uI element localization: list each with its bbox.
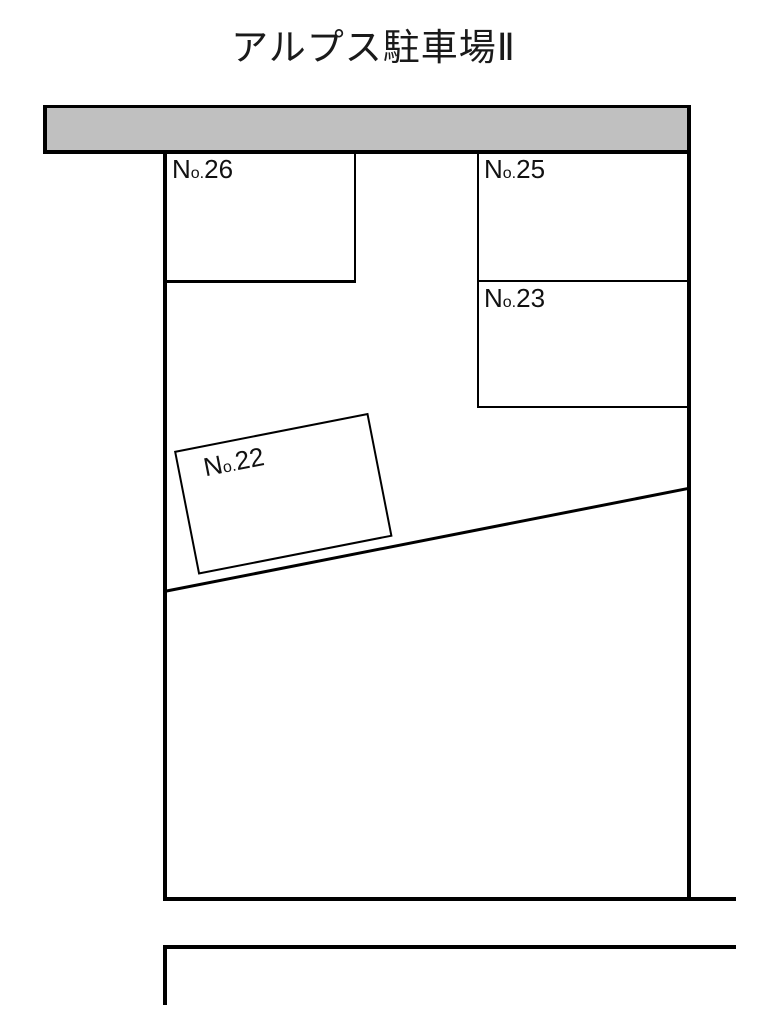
parking-lot-diagram: アルプス駐車場Ⅱ No.26 No.25 No.23 No.22 — [0, 0, 761, 1009]
label-prefix-small: o. — [191, 165, 204, 182]
label-prefix-small: o. — [503, 294, 516, 311]
space-25-label: No.25 — [479, 153, 545, 182]
label-prefix: N — [484, 154, 503, 184]
label-prefix: N — [172, 154, 191, 184]
space-22-label: No.22 — [176, 436, 266, 485]
boundary-right-line — [687, 105, 691, 901]
page-title: アルプス駐車場Ⅱ — [0, 17, 747, 71]
label-prefix: N — [484, 283, 503, 313]
road-strip — [43, 105, 691, 154]
label-number: 23 — [516, 283, 545, 313]
label-prefix: N — [201, 449, 225, 482]
label-number: 25 — [516, 154, 545, 184]
lower-structure-left-line — [163, 945, 167, 1005]
parking-space-26: No.26 — [167, 153, 356, 283]
parking-space-25: No.25 — [477, 153, 687, 282]
label-number: 26 — [204, 154, 233, 184]
boundary-bottom-line — [163, 897, 736, 901]
parking-space-23: No.23 — [477, 282, 687, 408]
label-number: 22 — [232, 441, 266, 476]
space-26-label: No.26 — [167, 153, 233, 182]
lower-structure-top-line — [163, 945, 736, 949]
label-prefix-small: o. — [503, 165, 516, 182]
space-23-label: No.23 — [479, 282, 545, 311]
